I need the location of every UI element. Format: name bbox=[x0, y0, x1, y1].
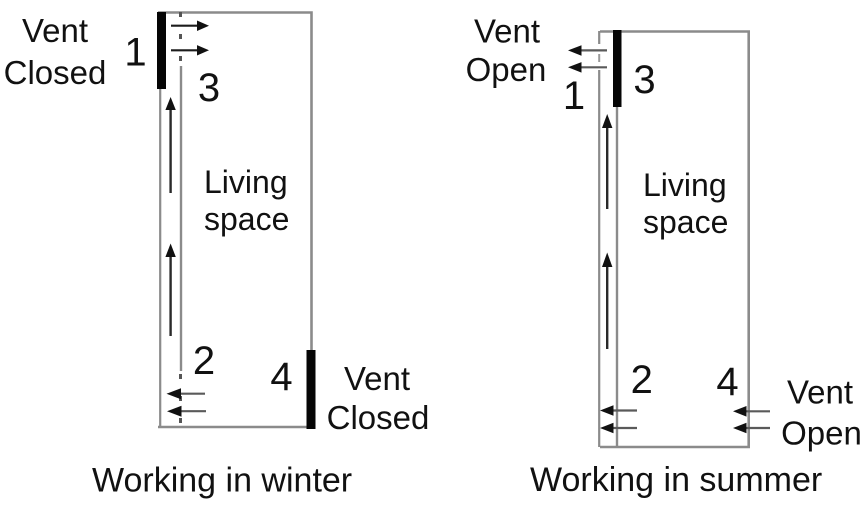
svg-text:Vent: Vent bbox=[787, 373, 853, 410]
svg-text:3: 3 bbox=[198, 66, 220, 110]
svg-text:space: space bbox=[204, 201, 289, 237]
svg-text:Closed: Closed bbox=[4, 54, 107, 91]
svg-text:Vent: Vent bbox=[344, 360, 410, 397]
svg-text:Vent: Vent bbox=[22, 12, 88, 49]
svg-text:space: space bbox=[643, 204, 728, 240]
svg-text:Living: Living bbox=[204, 164, 288, 200]
svg-text:2: 2 bbox=[631, 358, 653, 402]
svg-text:Open: Open bbox=[781, 415, 862, 452]
svg-text:Working in summer: Working in summer bbox=[530, 461, 822, 499]
svg-text:1: 1 bbox=[563, 74, 585, 118]
svg-text:4: 4 bbox=[270, 355, 292, 399]
svg-text:4: 4 bbox=[716, 360, 738, 404]
svg-text:Working in winter: Working in winter bbox=[92, 462, 352, 500]
svg-text:3: 3 bbox=[633, 58, 655, 102]
svg-text:2: 2 bbox=[193, 339, 215, 383]
svg-text:Vent: Vent bbox=[474, 13, 540, 50]
svg-text:Living: Living bbox=[643, 167, 727, 203]
svg-text:1: 1 bbox=[124, 31, 146, 75]
svg-text:Open: Open bbox=[466, 51, 547, 88]
svg-text:Closed: Closed bbox=[327, 399, 430, 436]
